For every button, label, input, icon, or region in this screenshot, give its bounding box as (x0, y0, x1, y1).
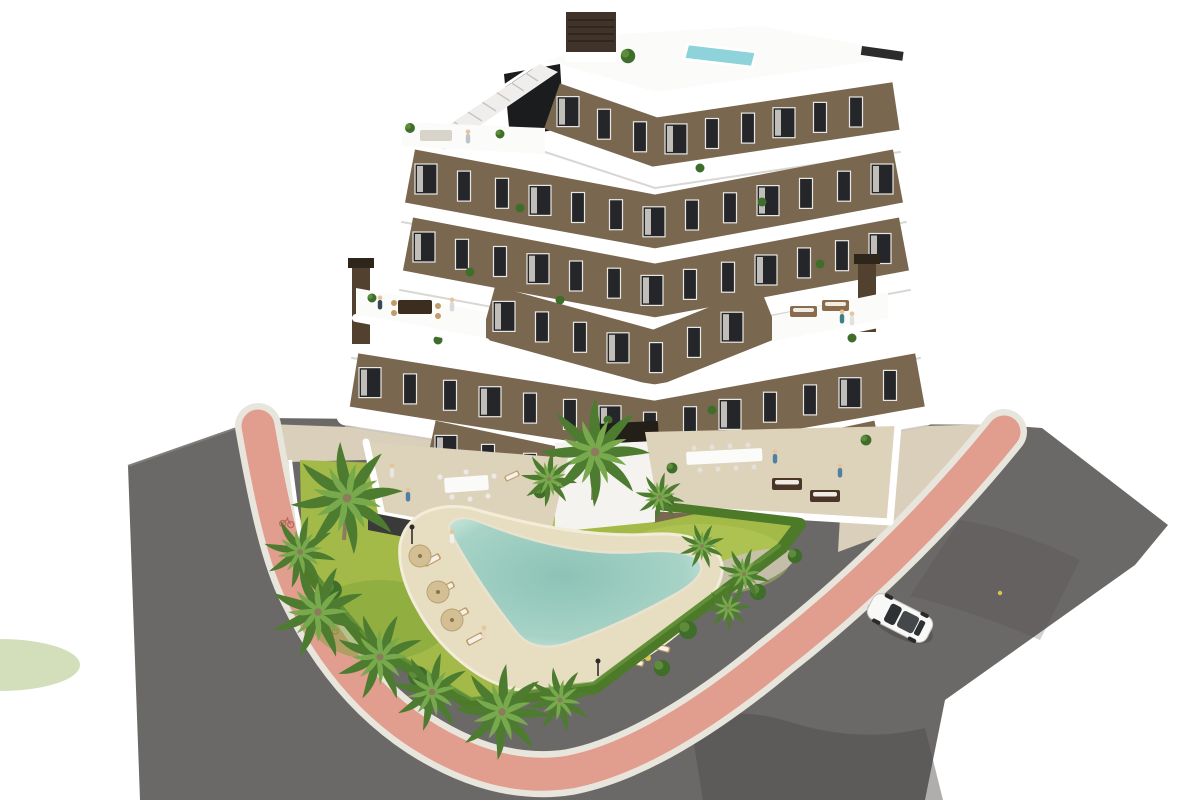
terrace-person (850, 312, 855, 326)
terrace-plant (861, 435, 872, 446)
window (764, 392, 777, 422)
curtain (841, 380, 847, 406)
window (798, 248, 811, 278)
roof-plant (621, 49, 635, 63)
curtain (559, 99, 565, 125)
curtain (645, 209, 651, 235)
curtain (417, 166, 423, 192)
curtain (643, 277, 649, 303)
terrace-sofa (420, 130, 452, 141)
terrace-plant (667, 463, 678, 474)
curtain (415, 234, 421, 260)
curtain (775, 110, 781, 136)
architectural-rendering (0, 0, 1200, 800)
window (884, 370, 897, 400)
window (536, 312, 549, 342)
chimney-left-cap (348, 258, 374, 268)
window (574, 322, 587, 352)
balcony-planter (848, 334, 857, 343)
lawn-shade (0, 639, 80, 691)
balcony-planter (466, 268, 475, 277)
window (838, 171, 851, 201)
terrace-plant (405, 123, 415, 133)
window (598, 109, 611, 139)
terrace-plant (496, 130, 505, 139)
balcony-planter (516, 204, 525, 213)
resident (390, 464, 395, 478)
terrace-person (378, 296, 383, 310)
window (650, 343, 663, 373)
window (800, 178, 813, 208)
shrub (679, 621, 697, 639)
window (494, 247, 507, 277)
window (814, 102, 827, 132)
window (686, 200, 699, 230)
curtain (721, 401, 727, 427)
chimney-right-cap (854, 254, 880, 264)
window (456, 239, 469, 269)
window (524, 393, 537, 423)
window (572, 193, 585, 223)
road-marking-dot (998, 591, 1002, 595)
window (608, 268, 621, 298)
bather (450, 530, 455, 544)
window (850, 97, 863, 127)
parasol (441, 609, 463, 631)
window (458, 171, 471, 201)
terrace-person (840, 310, 845, 324)
terrace-person (450, 298, 455, 312)
resident (406, 488, 411, 502)
window (444, 380, 457, 410)
curtain (667, 126, 673, 152)
window (724, 193, 737, 223)
window (610, 200, 623, 230)
balcony-planter (604, 416, 613, 425)
window (634, 122, 647, 152)
curtain (529, 256, 535, 282)
terrace-dining-table (398, 300, 432, 314)
window (804, 385, 817, 415)
bather (482, 626, 487, 640)
curtain (495, 303, 501, 329)
balcony-planter (708, 406, 717, 415)
curtain (723, 314, 729, 340)
window (496, 178, 509, 208)
window (688, 327, 701, 357)
resident (838, 464, 843, 478)
curtain (361, 370, 367, 396)
dining-table (444, 475, 489, 493)
parasol (427, 581, 449, 603)
window (404, 374, 417, 404)
window (706, 119, 719, 149)
curtain (609, 335, 615, 361)
curtain (531, 187, 537, 213)
window (570, 261, 583, 291)
balcony-planter (696, 164, 705, 173)
curtain (481, 389, 487, 415)
window (836, 241, 849, 271)
parasol (409, 545, 431, 567)
window (684, 269, 697, 299)
road-details (998, 591, 1002, 595)
curtain (873, 166, 879, 192)
shrub (788, 549, 802, 563)
balcony-planter (816, 260, 825, 269)
shrub (654, 660, 670, 676)
balcony-planter (758, 198, 767, 207)
curtain (757, 257, 763, 283)
terrace-person (466, 130, 471, 144)
balcony-planter (556, 296, 565, 305)
window (742, 113, 755, 143)
aerial-render-canvas (0, 0, 1200, 800)
terrace-plant (368, 294, 377, 303)
resident (773, 450, 778, 464)
window (722, 262, 735, 292)
stair-tower (566, 12, 616, 54)
stair-tower-cap (566, 52, 616, 62)
